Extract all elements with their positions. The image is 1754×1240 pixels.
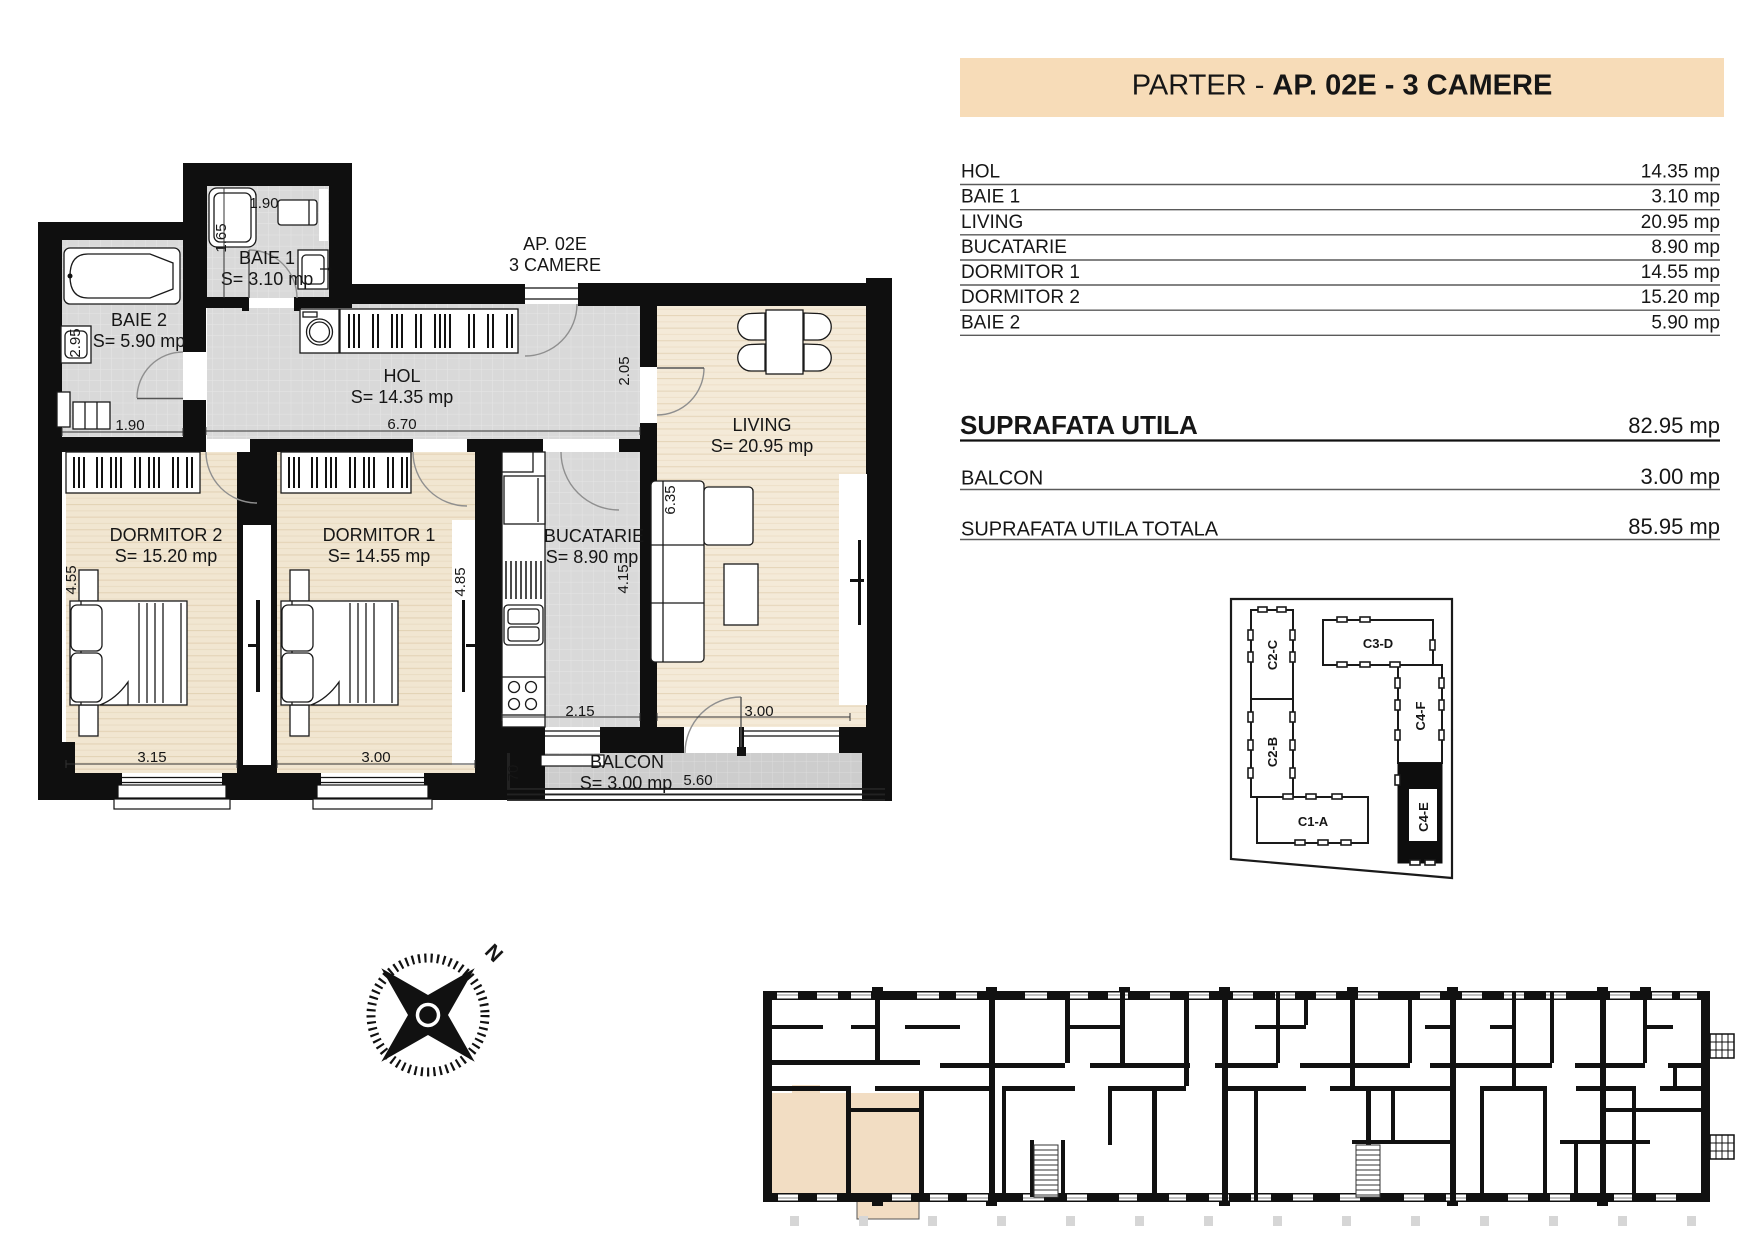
svg-text:C4-F: C4-F [1413,701,1428,730]
svg-text:LIVING: LIVING [961,212,1023,233]
svg-text:6.70: 6.70 [387,416,416,433]
svg-text:20.95 mp: 20.95 mp [1641,212,1720,233]
svg-text:1.90: 1.90 [115,417,144,434]
svg-text:70: 70 [505,765,522,782]
svg-text:S= 20.95 mp: S= 20.95 mp [711,436,814,456]
svg-text:BAIE 1: BAIE 1 [239,248,295,268]
svg-text:3.15: 3.15 [137,749,166,766]
svg-text:C2-B: C2-B [1265,737,1280,767]
svg-text:4.55: 4.55 [63,565,80,594]
svg-text:SUPRAFATA UTILA TOTALA: SUPRAFATA UTILA TOTALA [961,519,1219,541]
svg-text:S= 3.10 mp: S= 3.10 mp [221,269,314,289]
svg-text:BAIE 2: BAIE 2 [111,310,167,330]
svg-text:S= 15.20 mp: S= 15.20 mp [115,546,218,566]
svg-text:S= 14.55 mp: S= 14.55 mp [328,546,431,566]
svg-text:C4-E: C4-E [1416,802,1431,832]
svg-text:DORMITOR 2: DORMITOR 2 [961,287,1080,308]
svg-text:6.35: 6.35 [662,485,679,514]
svg-text:85.95 mp: 85.95 mp [1628,514,1720,539]
svg-text:S= 3.00 mp: S= 3.00 mp [580,773,673,793]
svg-text:82.95 mp: 82.95 mp [1628,413,1720,438]
svg-text:1.65: 1.65 [213,223,230,252]
svg-text:2.05: 2.05 [616,356,633,385]
svg-text:3 CAMERE: 3 CAMERE [509,255,601,275]
svg-text:BUCATARIE: BUCATARIE [544,526,644,546]
svg-text:PARTER - AP. 02E - 3 CAMERE: PARTER - AP. 02E - 3 CAMERE [1132,70,1553,102]
svg-text:BAIE 1: BAIE 1 [961,187,1020,208]
svg-text:S= 5.90 mp: S= 5.90 mp [93,331,186,351]
svg-text:S= 8.90 mp: S= 8.90 mp [546,547,639,567]
svg-text:DORMITOR 2: DORMITOR 2 [110,525,223,545]
svg-text:5.90 mp: 5.90 mp [1651,312,1720,333]
svg-text:BALCON: BALCON [590,752,664,772]
svg-text:3.10 mp: 3.10 mp [1651,187,1720,208]
svg-text:4.85: 4.85 [452,567,469,596]
svg-text:S= 14.35 mp: S= 14.35 mp [351,387,454,407]
svg-text:2.95: 2.95 [67,328,84,357]
svg-text:4.15: 4.15 [615,564,632,593]
svg-text:3.00 mp: 3.00 mp [1641,464,1721,489]
svg-text:SUPRAFATA UTILA: SUPRAFATA UTILA [960,410,1198,440]
svg-text:BAIE 2: BAIE 2 [961,312,1020,333]
svg-text:DORMITOR 1: DORMITOR 1 [323,525,436,545]
svg-text:14.55 mp: 14.55 mp [1641,262,1720,283]
svg-text:C2-C: C2-C [1265,639,1280,670]
svg-text:BALCON: BALCON [961,468,1043,490]
svg-text:AP. 02E: AP. 02E [523,234,587,254]
svg-text:14.35 mp: 14.35 mp [1641,162,1720,183]
svg-text:HOL: HOL [383,366,420,386]
svg-text:C3-D: C3-D [1363,636,1393,651]
svg-text:8.90 mp: 8.90 mp [1651,237,1720,258]
svg-text:5.60: 5.60 [683,772,712,789]
svg-text:BUCATARIE: BUCATARIE [961,237,1067,258]
svg-text:1.90: 1.90 [249,195,278,212]
svg-text:15.20 mp: 15.20 mp [1641,287,1720,308]
svg-text:DORMITOR 1: DORMITOR 1 [961,262,1080,283]
svg-text:3.00: 3.00 [361,749,390,766]
svg-text:HOL: HOL [961,162,1000,183]
svg-text:LIVING: LIVING [732,415,791,435]
svg-text:C1-A: C1-A [1298,814,1329,829]
